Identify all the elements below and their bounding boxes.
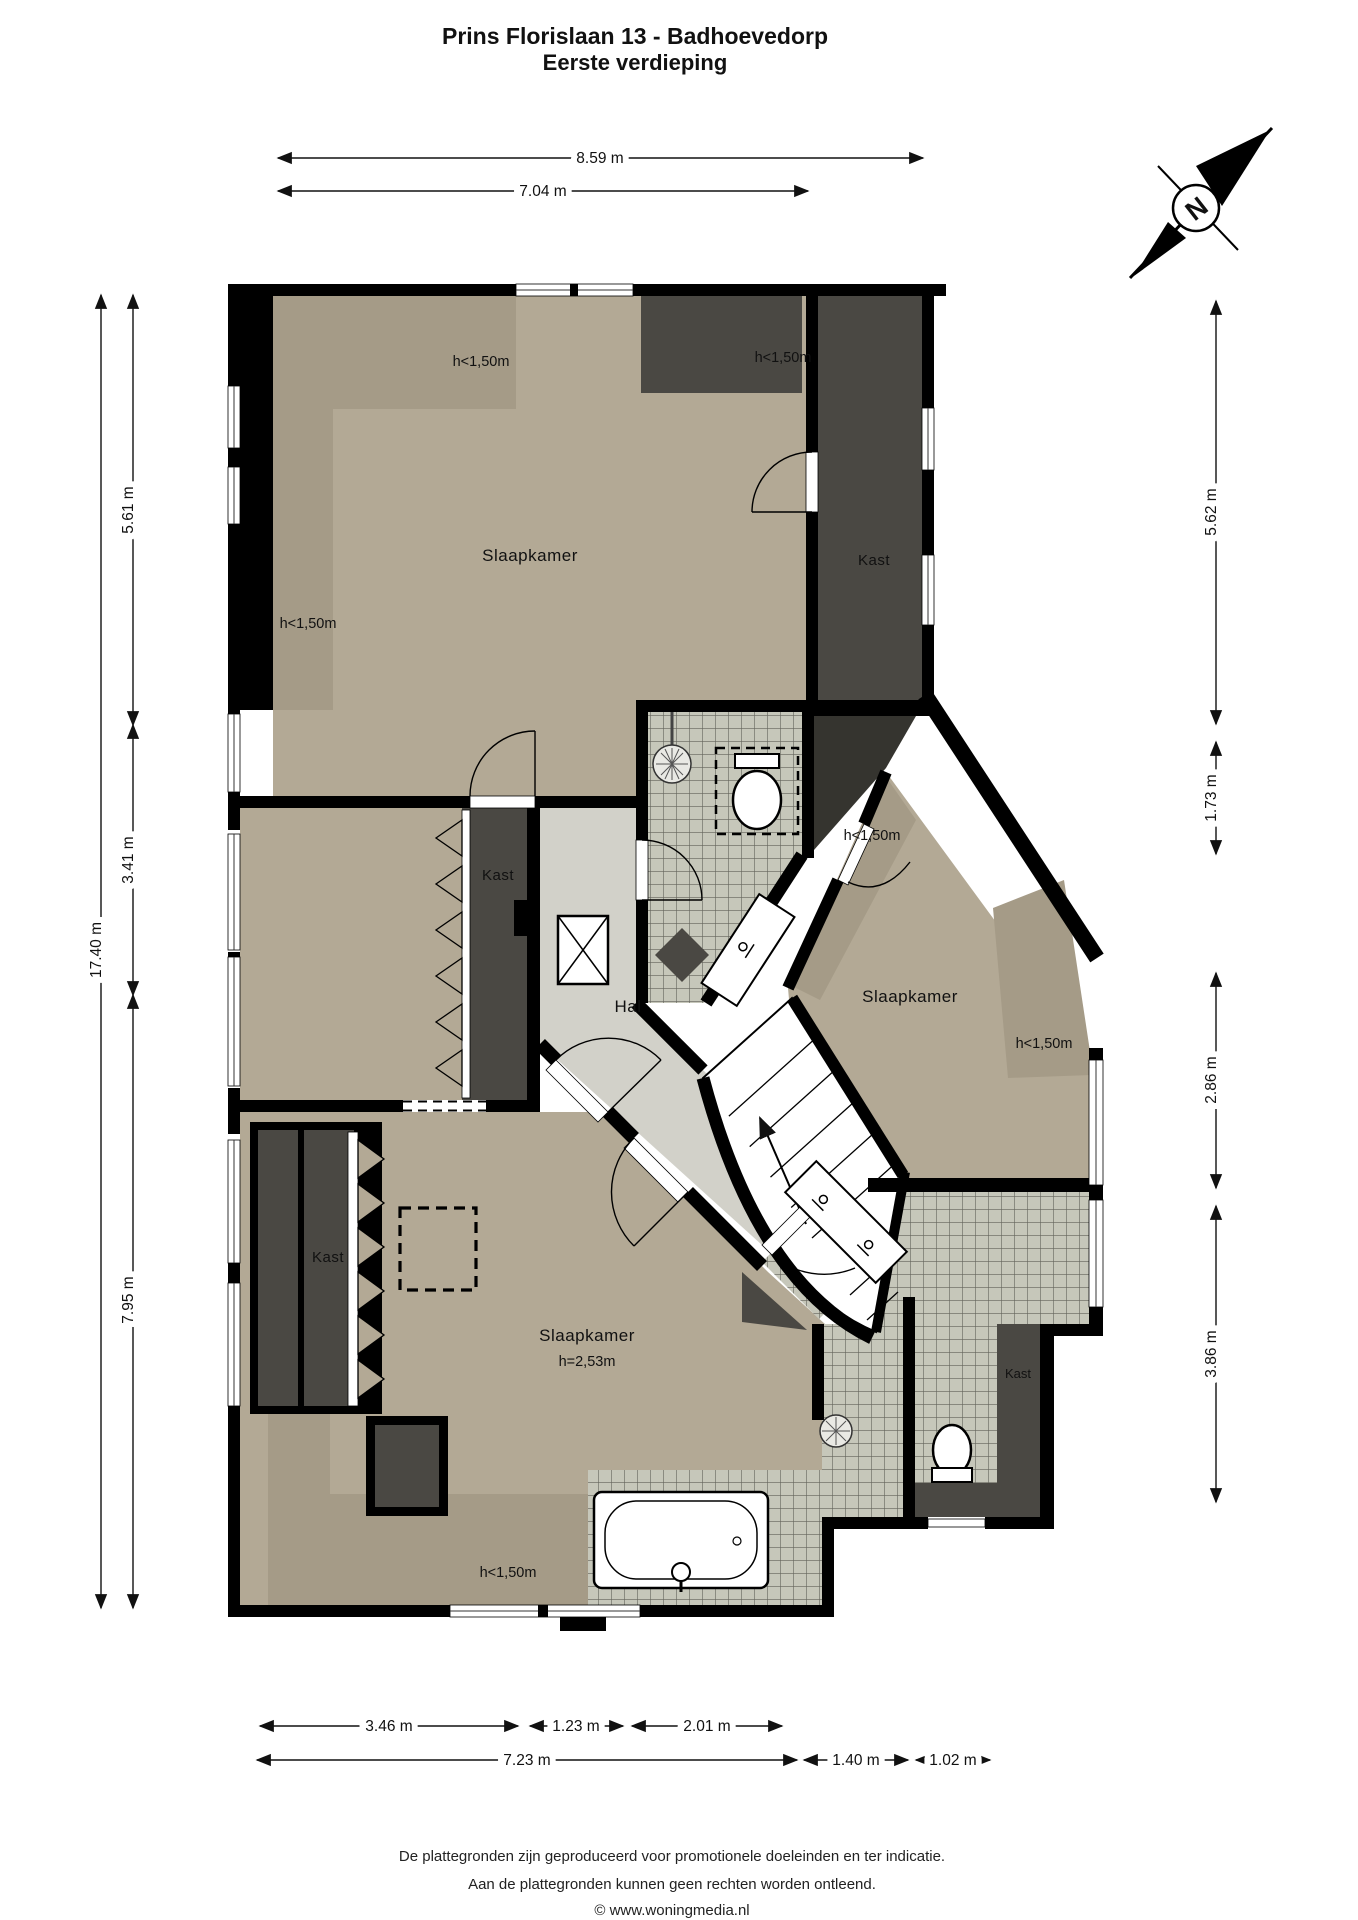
chimney-block [375,1425,439,1507]
dim-b1: 3.46 m [365,1718,412,1735]
dim-left-total: 17.40 m [88,922,105,978]
floorplan-page: Prins Florislaan 13 - Badhoevedorp Eerst… [0,0,1358,1920]
shower-head-icon [820,1415,852,1447]
footer-line1: De plattegronden zijn geproduceerd voor … [399,1848,945,1865]
bathtub-icon [594,1492,768,1592]
footer-disclaimer: De plattegronden zijn geproduceerd voor … [399,1848,945,1919]
wall-opening [403,1100,486,1112]
label-closet-middle-left: Kast [482,867,514,884]
floorplan-canvas: Prins Florislaan 13 - Badhoevedorp Eerst… [0,0,1358,1920]
label-height-restriction: h<1,50m [480,1565,537,1581]
shaft-symbol [558,916,608,984]
dim-top-outer: 8.59 m [576,150,623,167]
title-line1: Prins Florislaan 13 - Badhoevedorp [442,23,828,49]
dim-b3: 2.01 m [683,1718,730,1735]
label-height-restriction: h<1,50m [280,616,337,632]
footer-copyright: © www.woningmedia.nl [594,1902,749,1919]
dim-left-1: 5.61 m [120,486,137,533]
label-height-restriction: h<1,50m [1016,1036,1073,1052]
label-bedroom-right: Slaapkamer [862,987,958,1006]
low-ceiling-zone [273,296,516,409]
label-height-restriction: h<1,50m [844,828,901,844]
label-hall: Hal [614,997,641,1016]
dim-right-3: 2.86 m [1203,1056,1220,1103]
dim-left-2: 3.41 m [120,836,137,883]
dim-right-4: 3.86 m [1203,1330,1220,1377]
label-bedroom-top-left: Slaapkamer [482,546,578,565]
dim-right-1: 5.62 m [1203,488,1220,535]
toilet-icon [932,1425,972,1482]
label-height-restriction: h<1,50m [755,350,812,366]
dim-top-inner: 7.04 m [519,183,566,200]
label-bedroom-bottom: Slaapkamer [539,1326,635,1345]
label-bedroom-bottom-height: h=2,53m [559,1354,616,1370]
dim-left-3: 7.95 m [120,1276,137,1323]
label-height-restriction: h<1,50m [453,354,510,370]
low-attic-zone [641,296,802,393]
title-line2: Eerste verdieping [543,50,728,75]
label-closet-bathroom: Kast [1005,1366,1031,1381]
label-closet-top-right: Kast [858,552,890,569]
footer-line2: Aan de plattegronden kunnen geen rechten… [468,1876,876,1893]
compass-north-icon: N [1130,128,1272,278]
closet-middle-left-floor [462,808,527,1100]
dim-b5: 1.40 m [832,1752,879,1769]
closet-top-right-floor [814,296,922,700]
page-title: Prins Florislaan 13 - Badhoevedorp Eerst… [442,23,828,75]
dim-b4: 7.23 m [503,1752,550,1769]
dim-b2: 1.23 m [552,1718,599,1735]
dim-b6: 1.02 m [929,1752,976,1769]
label-closet-bottom-left: Kast [312,1249,344,1266]
dim-right-2: 1.73 m [1203,774,1220,821]
low-ceiling-zone [273,409,333,710]
